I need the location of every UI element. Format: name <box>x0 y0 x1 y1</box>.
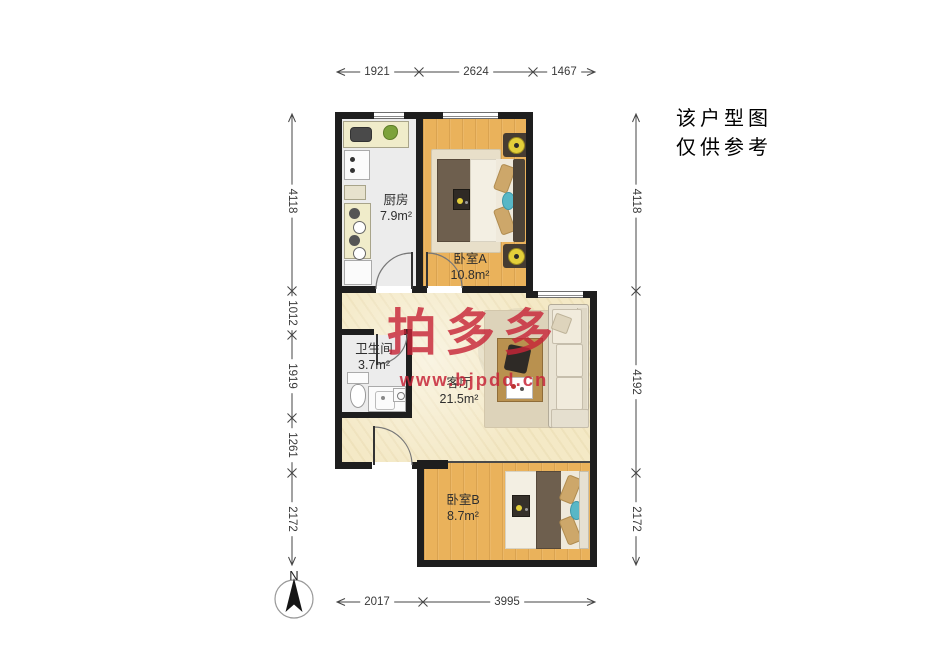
bedroom-a-pillows <box>496 159 514 242</box>
wall <box>416 119 423 293</box>
wall <box>526 112 533 298</box>
sofa <box>548 304 589 428</box>
room-name: 卧室A <box>451 251 490 267</box>
wall <box>342 329 374 335</box>
dim-top-2: 2624 <box>459 66 493 78</box>
floorplan-page: 厨房 7.9m² 卧室A 10.8m² 卫生间 3.7m² 客厅 21.5m² … <box>0 0 952 662</box>
dim-top-1: 1921 <box>360 66 394 78</box>
bedroom-a-sheet <box>470 159 497 242</box>
toilet-tank <box>347 372 369 384</box>
bedroom-b-pillows <box>561 471 580 549</box>
kitchen-stove <box>344 203 371 259</box>
bedroom-b-tv-panel <box>512 495 530 517</box>
dim-left-5: 2172 <box>286 502 298 536</box>
room-area: 8.7m² <box>446 508 479 524</box>
room-name: 卫生间 <box>355 341 393 357</box>
north-label: N <box>289 568 298 583</box>
room-area: 3.7m² <box>355 357 393 373</box>
wall <box>342 412 412 418</box>
dim-left-1: 4118 <box>286 185 298 218</box>
dim-bottom-1: 2017 <box>360 596 394 608</box>
room-name: 厨房 <box>380 192 412 208</box>
dim-right-2: 4192 <box>630 365 642 399</box>
wall <box>462 286 533 293</box>
wall <box>335 286 376 293</box>
bedroom-a-tv-panel <box>453 189 470 210</box>
reference-note-line2: 仅供参考 <box>676 133 772 162</box>
room-area: 21.5m² <box>440 391 479 407</box>
room-label-bathroom: 卫生间 3.7m² <box>355 341 393 373</box>
room-name: 卧室B <box>446 492 479 508</box>
coffee-table <box>497 338 543 402</box>
washing-machine-icon <box>393 388 406 402</box>
bedroom-b-headboard <box>579 471 589 549</box>
bedroom-b-duvet <box>536 471 563 549</box>
room-area: 7.9m² <box>380 208 412 224</box>
wall <box>417 460 424 567</box>
room-divider-line <box>448 461 590 463</box>
dim-right-1: 4118 <box>630 185 642 218</box>
bedroom-a-window <box>443 112 498 119</box>
wall <box>526 291 538 298</box>
wall <box>412 286 427 293</box>
kitchen-appliance <box>344 150 370 180</box>
room-label-kitchen: 厨房 7.9m² <box>380 192 412 224</box>
wall <box>590 291 597 567</box>
kitchen-small-appliance <box>344 185 366 200</box>
bedroom-a-headboard <box>513 159 525 242</box>
kitchen-sink-icon <box>350 127 372 142</box>
dim-top-3: 1467 <box>547 66 581 78</box>
dim-left-4: 1261 <box>286 428 298 462</box>
room-area: 10.8m² <box>451 267 490 283</box>
reference-note: 该户型图 仅供参考 <box>676 104 772 162</box>
living-room-window <box>538 291 583 298</box>
room-label-bedroom-a: 卧室A 10.8m² <box>451 251 490 283</box>
reference-note-line1: 该户型图 <box>676 104 772 133</box>
kitchen-cabinet <box>344 260 372 285</box>
north-arrow-icon <box>275 578 313 618</box>
wall <box>417 460 448 469</box>
wall <box>417 560 597 567</box>
wall <box>406 329 412 418</box>
room-name: 客厅 <box>440 375 479 391</box>
dim-right-3: 2172 <box>630 502 642 536</box>
dim-bottom-2: 3995 <box>490 596 524 608</box>
toilet-bowl-icon <box>350 384 366 408</box>
dim-left-2: 1012 <box>286 296 298 330</box>
wall <box>335 462 372 469</box>
wall <box>404 112 443 119</box>
kitchen-window <box>374 112 404 119</box>
dim-left-3: 1919 <box>286 359 298 393</box>
room-label-living: 客厅 21.5m² <box>440 375 479 407</box>
room-label-bedroom-b: 卧室B 8.7m² <box>446 492 479 524</box>
